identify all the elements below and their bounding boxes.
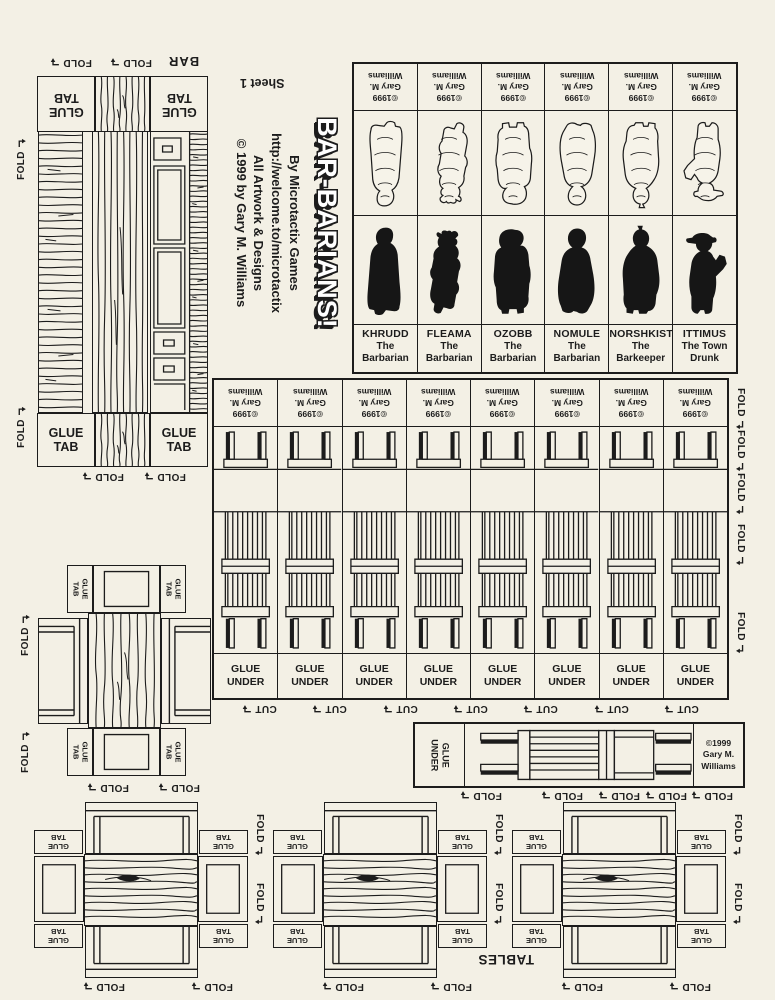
fold-label: FOLD — [21, 731, 31, 773]
fold-arrow-icon — [736, 462, 745, 472]
wood-grain-art — [96, 414, 149, 466]
character-silhouette — [484, 220, 542, 324]
character-art-cell — [354, 111, 417, 216]
fold-arrow-icon — [191, 982, 201, 991]
chair-column: ©1999Gary M.Williams GLUEUNDER — [471, 380, 535, 698]
wood-grain-art — [324, 855, 436, 925]
tables-section-label: TABLES — [478, 952, 534, 967]
character-standee-grid: ©1999Gary M.Williams KHRUDDTheBarbarian … — [352, 62, 738, 374]
glue-under-label: GLUEUNDER — [415, 724, 465, 786]
fold-label: FOLD — [322, 981, 364, 991]
bar-back-shelves — [150, 131, 208, 413]
cut-text: CUT — [536, 704, 558, 714]
under-text: UNDER — [677, 676, 714, 689]
cut-arrow-icon — [664, 704, 674, 713]
fold-text: FOLD — [574, 981, 603, 991]
fold-label-wrap: FOLD — [14, 404, 30, 450]
bar-fold-strip — [95, 76, 150, 132]
glue-tab: GLUETAB — [273, 830, 322, 854]
glue-text: GLUE — [360, 663, 389, 676]
bench-box: GLUEUNDER ©1999Gary M.Williams — [413, 722, 745, 788]
publisher-url: http://welcome.to/microtactix — [268, 133, 286, 313]
bar-piece: FOLD FOLD BAR GLUETAB GLUETAB FOLD FOLD — [18, 52, 222, 492]
title-block: BAR-BARIANS! By Microtactix Games http:/… — [222, 56, 352, 390]
tab-text: TAB — [49, 440, 84, 454]
glue-text: GLUE — [488, 663, 517, 676]
character-art-cell — [673, 111, 736, 216]
byline: By Microtactix Games — [285, 155, 303, 291]
table-legs-top — [324, 802, 437, 854]
fold-text: FOLD — [732, 883, 742, 912]
copyright-name2: Williams — [687, 70, 721, 81]
character-name: FLEAMA — [418, 328, 481, 341]
copyright-notice: ©1999Gary M.Williams — [214, 380, 277, 427]
glue-text: GLUE — [231, 663, 260, 676]
fold-label: FOLD — [732, 814, 742, 856]
fold-text: FOLD — [157, 471, 186, 481]
fold-arrow-icon — [736, 420, 745, 430]
copyright-year: ©1999 — [624, 93, 658, 104]
character-column: ©1999Gary M.Williams NORSHKISTTheBarkeep… — [609, 64, 673, 372]
copyright-name: Gary M. — [614, 397, 648, 408]
tab-text: TAB — [287, 927, 308, 936]
bar-fold-strip — [95, 413, 150, 467]
fold-text: FOLD — [735, 524, 745, 553]
fold-label: FOLD — [144, 471, 186, 481]
glue-tab: GLUETAB — [677, 830, 726, 854]
cut-text: CUT — [255, 704, 277, 714]
glue-text: GLUE — [173, 579, 182, 600]
game-title: BAR-BARIANS! — [311, 117, 342, 328]
fold-label: FOLD — [50, 57, 92, 67]
glue-tab: GLUETAB — [512, 924, 561, 948]
character-line-art — [613, 114, 669, 212]
glue-tab: GLUETAB — [150, 413, 208, 467]
cut-label: CUT — [594, 701, 629, 716]
fold-label: FOLD — [735, 388, 745, 430]
fold-text: FOLD — [63, 57, 92, 67]
glue-tab: GLUETAB — [512, 830, 561, 854]
glue-tab: GLUETAB — [37, 76, 95, 132]
character-column: ©1999Gary M.Williams FLEAMATheBarbarian — [418, 64, 482, 372]
glue-text: GLUE — [295, 663, 324, 676]
fold-arrow-icon — [18, 406, 27, 416]
glue-tab: GLUETAB — [438, 924, 487, 948]
character-silhouette-cell — [482, 216, 545, 325]
character-title: The — [545, 341, 608, 353]
wood-grain-art — [85, 855, 197, 925]
copyright-name: Gary M. — [496, 81, 530, 92]
tab-text: TAB — [48, 927, 69, 936]
copyright-year: ©1999 — [228, 409, 262, 420]
fold-arrow-icon — [493, 915, 502, 925]
copyright-name: Gary M. — [560, 81, 594, 92]
table-side-art — [199, 857, 247, 921]
cut-label: CUT — [242, 701, 277, 716]
copyright-name: Gary M. — [701, 749, 735, 760]
cut-text: CUT — [325, 704, 347, 714]
fold-text: FOLD — [17, 151, 27, 180]
fold-arrow-icon — [736, 556, 745, 566]
chair-art — [214, 427, 277, 653]
cut-label: CUT — [664, 701, 699, 716]
table-side-right — [198, 856, 248, 922]
copyright-name: Gary M. — [550, 397, 584, 408]
under-text: UNDER — [291, 676, 328, 689]
tab-text: TAB — [48, 833, 69, 842]
copyright-name2: Williams — [560, 70, 594, 81]
glue-text: GLUE — [681, 663, 710, 676]
tab-text: TAB — [71, 579, 80, 600]
character-silhouette-cell — [418, 216, 481, 325]
tab-text: TAB — [526, 833, 547, 842]
glue-text: GLUE — [213, 936, 234, 945]
chair-art — [664, 427, 727, 653]
fold-text: FOLD — [95, 471, 124, 481]
character-silhouette-cell — [354, 216, 417, 325]
tab-text: TAB — [162, 90, 197, 104]
fold-label: FOLD — [493, 814, 503, 856]
glue-text: GLUE — [439, 739, 450, 771]
character-art-cell — [609, 111, 672, 216]
sheet-number: Sheet 1 — [240, 76, 284, 90]
table-top-wood — [323, 854, 437, 926]
glue-tab: GLUETAB — [67, 565, 93, 613]
table-side-left — [273, 856, 323, 922]
table-side-art — [677, 857, 725, 921]
character-column: ©1999Gary M.Williams ITTIMUSThe TownDrun… — [673, 64, 736, 372]
glue-tab: GLUETAB — [37, 413, 95, 467]
table-side-art — [513, 857, 561, 921]
fold-arrow-icon — [561, 982, 571, 991]
fold-label-wrap: FOLD — [728, 814, 745, 856]
character-title2: Barbarian — [354, 353, 417, 365]
glue-text: GLUE — [287, 936, 308, 945]
tab-text: TAB — [691, 927, 712, 936]
tab-text: TAB — [287, 833, 308, 842]
copyright-notice: ©1999Gary M.Williams — [278, 380, 341, 427]
cut-arrow-icon — [312, 704, 322, 713]
table-legs-bottom — [324, 926, 437, 978]
fold-text: FOLD — [17, 419, 27, 448]
copyright-notice: ©1999Gary M.Williams — [471, 380, 534, 427]
chair-column: ©1999Gary M.Williams GLUEUNDER — [343, 380, 407, 698]
copyright-year: ©1999 — [701, 738, 735, 749]
chair-art — [407, 427, 470, 653]
copyright-name: Gary M. — [228, 397, 262, 408]
copyright-name2: Williams — [357, 386, 391, 397]
fold-text: FOLD — [335, 981, 364, 991]
glue-tab: GLUETAB — [199, 830, 248, 854]
table-side-left — [512, 856, 562, 922]
character-column: ©1999Gary M.Williams NOMULETheBarbarian — [545, 64, 609, 372]
table-arm — [93, 728, 160, 776]
copyright-name2: Williams — [550, 386, 584, 397]
fold-text: FOLD — [732, 814, 742, 843]
fold-label-wrap: FOLD — [250, 883, 267, 925]
under-text: UNDER — [355, 676, 392, 689]
fold-text: FOLD — [443, 981, 472, 991]
fold-label-wrap: FOLD — [731, 526, 749, 564]
chair-column: ©1999Gary M.Williams GLUEUNDER — [407, 380, 471, 698]
character-art-cell — [545, 111, 608, 216]
fold-text: FOLD — [735, 388, 745, 417]
character-silhouette-cell — [545, 216, 608, 325]
fold-text: FOLD — [123, 57, 152, 67]
table-piece: GLUETAB GLUETAB GLUETAB GLUETAB FOLD FOL… — [30, 788, 269, 1000]
table-legs-bottom — [85, 926, 198, 978]
character-art-cell — [482, 111, 545, 216]
copyright-name: Gary M. — [678, 397, 712, 408]
glue-text: GLUE — [452, 842, 473, 851]
fold-label-wrap: FOLD — [731, 388, 749, 430]
fold-text: FOLD — [204, 981, 233, 991]
copyright-name: Gary M. — [432, 81, 466, 92]
glue-tab: GLUETAB — [160, 728, 186, 776]
table-legs-art — [39, 619, 87, 723]
copyright-notice: ©1999Gary M.Williams — [693, 724, 743, 786]
copyright-name2: Williams — [421, 386, 455, 397]
tab-text: TAB — [452, 833, 473, 842]
glue-under-label: GLUEUNDER — [471, 653, 534, 698]
copyright-notice: ©1999Gary M.Williams — [482, 64, 545, 111]
copyright-name2: Williams — [678, 386, 712, 397]
copyright-name2: Williams — [368, 70, 402, 81]
glue-text: GLUE — [213, 842, 234, 851]
glue-under-label: GLUEUNDER — [407, 653, 470, 698]
copyright-notice: ©1999Gary M.Williams — [343, 380, 406, 427]
glue-text: GLUE — [80, 742, 89, 763]
table-piece-side: FOLD FOLD GLUETAB GLUETAB GLUETAB GLUETA… — [20, 558, 220, 800]
copyright-name: Gary M. — [293, 397, 327, 408]
table-arm-art — [94, 566, 159, 612]
tab-text: TAB — [691, 833, 712, 842]
character-name: KHRUDD — [354, 328, 417, 341]
chair-column: ©1999Gary M.Williams GLUEUNDER — [535, 380, 599, 698]
table-arm-art — [94, 729, 159, 775]
fold-text: FOLD — [735, 612, 745, 641]
copyright-name: Gary M. — [687, 81, 721, 92]
glue-text: GLUE — [48, 842, 69, 851]
copyright-year: ©1999 — [687, 93, 721, 104]
chair-art — [600, 427, 663, 653]
copyright-name2: Williams — [293, 386, 327, 397]
character-name-cell: FLEAMATheBarbarian — [418, 325, 481, 372]
tab-text: TAB — [526, 927, 547, 936]
character-title2: Barkeeper — [609, 353, 672, 365]
chair-art — [471, 427, 534, 653]
glue-tab: GLUETAB — [34, 924, 83, 948]
fold-arrow-icon — [322, 982, 332, 991]
fold-arrow-icon — [22, 731, 31, 741]
tab-text: TAB — [162, 440, 197, 454]
fold-arrow-icon — [144, 472, 154, 481]
glue-text: GLUE — [691, 936, 712, 945]
fold-label-wrap: FOLD — [728, 883, 745, 925]
copyright-name: Gary M. — [485, 397, 519, 408]
character-silhouette — [676, 220, 734, 324]
papercraft-sheet-page: FOLD FOLD BAR GLUETAB GLUETAB FOLD FOLD — [0, 0, 775, 1000]
table-legs-art — [86, 803, 197, 853]
cut-text: CUT — [396, 704, 418, 714]
fold-label: FOLD — [191, 981, 233, 991]
copyright-notice: ©1999Gary M.Williams — [600, 380, 663, 427]
fold-text: FOLD — [682, 981, 711, 991]
copyright-name2: Williams — [496, 70, 530, 81]
table-top-wood — [562, 854, 676, 926]
fold-label: FOLD — [17, 138, 27, 180]
copyright-name: Gary M. — [421, 397, 455, 408]
fold-label: FOLD — [669, 981, 711, 991]
character-title: The Town — [673, 341, 736, 353]
copyright-year: ©1999 — [496, 93, 530, 104]
fold-label: FOLD — [735, 524, 745, 566]
cut-arrow-icon — [523, 704, 533, 713]
glue-tab: GLUETAB — [438, 830, 487, 854]
cut-arrow-icon — [242, 704, 252, 713]
cut-text: CUT — [677, 704, 699, 714]
copyright-year: ©1999 — [485, 409, 519, 420]
fold-text: FOLD — [493, 814, 503, 843]
copyright-credit: © 1999 by Gary M. Williams — [232, 139, 250, 307]
character-title2: Barbarian — [482, 353, 545, 365]
table-legs-top — [563, 802, 676, 854]
character-title: The — [418, 341, 481, 353]
cut-text: CUT — [607, 704, 629, 714]
character-line-art — [357, 114, 413, 212]
fold-label: FOLD — [493, 883, 503, 925]
character-name-cell: NORSHKISTTheBarkeeper — [609, 325, 672, 372]
fold-arrow-icon — [732, 915, 741, 925]
cut-text: CUT — [466, 704, 488, 714]
fold-text: FOLD — [254, 883, 264, 912]
copyright-notice: ©1999Gary M.Williams — [609, 64, 672, 111]
table-legs-art — [325, 803, 436, 853]
glue-text: GLUE — [162, 426, 197, 440]
character-line-art — [421, 114, 477, 212]
table-side-art — [274, 857, 322, 921]
plank-art — [39, 132, 82, 412]
copyright-notice: ©1999Gary M.Williams — [664, 380, 727, 427]
character-silhouette — [356, 220, 414, 324]
character-name: OZOBB — [482, 328, 545, 341]
glue-text: GLUE — [526, 842, 547, 851]
wood-grain-art — [93, 132, 147, 412]
under-text: UNDER — [484, 676, 521, 689]
bar-top-grain — [92, 131, 148, 413]
table-side-right — [676, 856, 726, 922]
table-side-left — [34, 856, 84, 922]
bottom-tables-row: GLUETAB GLUETAB GLUETAB GLUETAB FOLD FOL… — [30, 788, 747, 1000]
copyright-year: ©1999 — [421, 409, 455, 420]
tab-text: TAB — [213, 927, 234, 936]
glue-text: GLUE — [80, 579, 89, 600]
glue-tab: GLUETAB — [677, 924, 726, 948]
glue-text: GLUE — [452, 936, 473, 945]
copyright-year: ©1999 — [614, 409, 648, 420]
character-title2: Drunk — [673, 353, 736, 365]
copyright-name2: Williams — [228, 386, 262, 397]
character-column: ©1999Gary M.Williams KHRUDDTheBarbarian — [354, 64, 418, 372]
copyright-notice: ©1999Gary M.Williams — [354, 64, 417, 111]
table-side-art — [35, 857, 83, 921]
glue-text: GLUE — [526, 936, 547, 945]
table-legs-art — [162, 619, 210, 723]
fold-label: FOLD — [735, 430, 745, 472]
chair-grid: ©1999Gary M.Williams GLUEUNDER ©1999Gary… — [212, 378, 729, 700]
copyright-year: ©1999 — [560, 93, 594, 104]
copyright-year: ©1999 — [357, 409, 391, 420]
copyright-name2: Williams — [701, 761, 735, 772]
under-text: UNDER — [420, 676, 457, 689]
glue-text: GLUE — [162, 104, 197, 118]
copyright-year: ©1999 — [368, 93, 402, 104]
fold-arrow-icon — [430, 982, 440, 991]
glue-text: GLUE — [424, 663, 453, 676]
fold-label-wrap: FOLD — [18, 613, 34, 657]
character-line-art — [549, 114, 605, 212]
tab-text: TAB — [49, 90, 84, 104]
tab-text: TAB — [164, 742, 173, 763]
glue-tab: GLUETAB — [160, 565, 186, 613]
fold-label: FOLD — [254, 814, 264, 856]
table-legs-right — [161, 618, 211, 724]
character-name: NOMULE — [545, 328, 608, 341]
under-text: UNDER — [428, 739, 439, 771]
character-name-cell: ITTIMUSThe TownDrunk — [673, 325, 736, 372]
table-legs-art — [564, 927, 675, 977]
table-arm — [93, 565, 160, 613]
glue-under-label: GLUEUNDER — [343, 653, 406, 698]
fold-text: FOLD — [493, 883, 503, 912]
cut-label: CUT — [453, 701, 488, 716]
character-silhouette-cell — [673, 216, 736, 325]
tab-text: TAB — [213, 833, 234, 842]
character-title2: Barbarian — [545, 353, 608, 365]
character-name: ITTIMUS — [673, 328, 736, 341]
cut-labels-row: CUT CUT CUT CUT CUT CUT CUT — [212, 699, 729, 716]
chair-column: ©1999Gary M.Williams GLUEUNDER — [664, 380, 727, 698]
glue-text: GLUE — [49, 426, 84, 440]
under-text: UNDER — [227, 676, 264, 689]
chair-column: ©1999Gary M.Williams GLUEUNDER — [278, 380, 342, 698]
wood-grain-art — [563, 855, 675, 925]
fold-arrow-icon — [732, 846, 741, 856]
fold-label-wrap: FOLD — [489, 883, 506, 925]
fold-arrow-icon — [18, 138, 27, 148]
fold-label: FOLD — [17, 406, 27, 448]
fold-text: FOLD — [735, 430, 745, 459]
fold-label: FOLD — [561, 981, 603, 991]
glue-tab: GLUETAB — [273, 924, 322, 948]
fold-arrow-icon — [669, 982, 679, 991]
character-line-art — [485, 114, 541, 212]
table-legs-left — [38, 618, 88, 724]
fold-label: FOLD — [83, 981, 125, 991]
character-title: The — [609, 341, 672, 353]
cut-arrow-icon — [383, 704, 393, 713]
table-legs-art — [86, 927, 197, 977]
table-top-wood — [84, 854, 198, 926]
fold-label: FOLD — [430, 981, 472, 991]
bar-front-planks — [38, 131, 83, 413]
fold-arrow-icon — [736, 505, 745, 515]
fold-label: FOLD — [735, 612, 745, 654]
cut-arrow-icon — [594, 704, 604, 713]
bar-piece-label: BAR — [168, 54, 199, 69]
table-legs-art — [564, 803, 675, 853]
glue-tab: GLUETAB — [67, 728, 93, 776]
